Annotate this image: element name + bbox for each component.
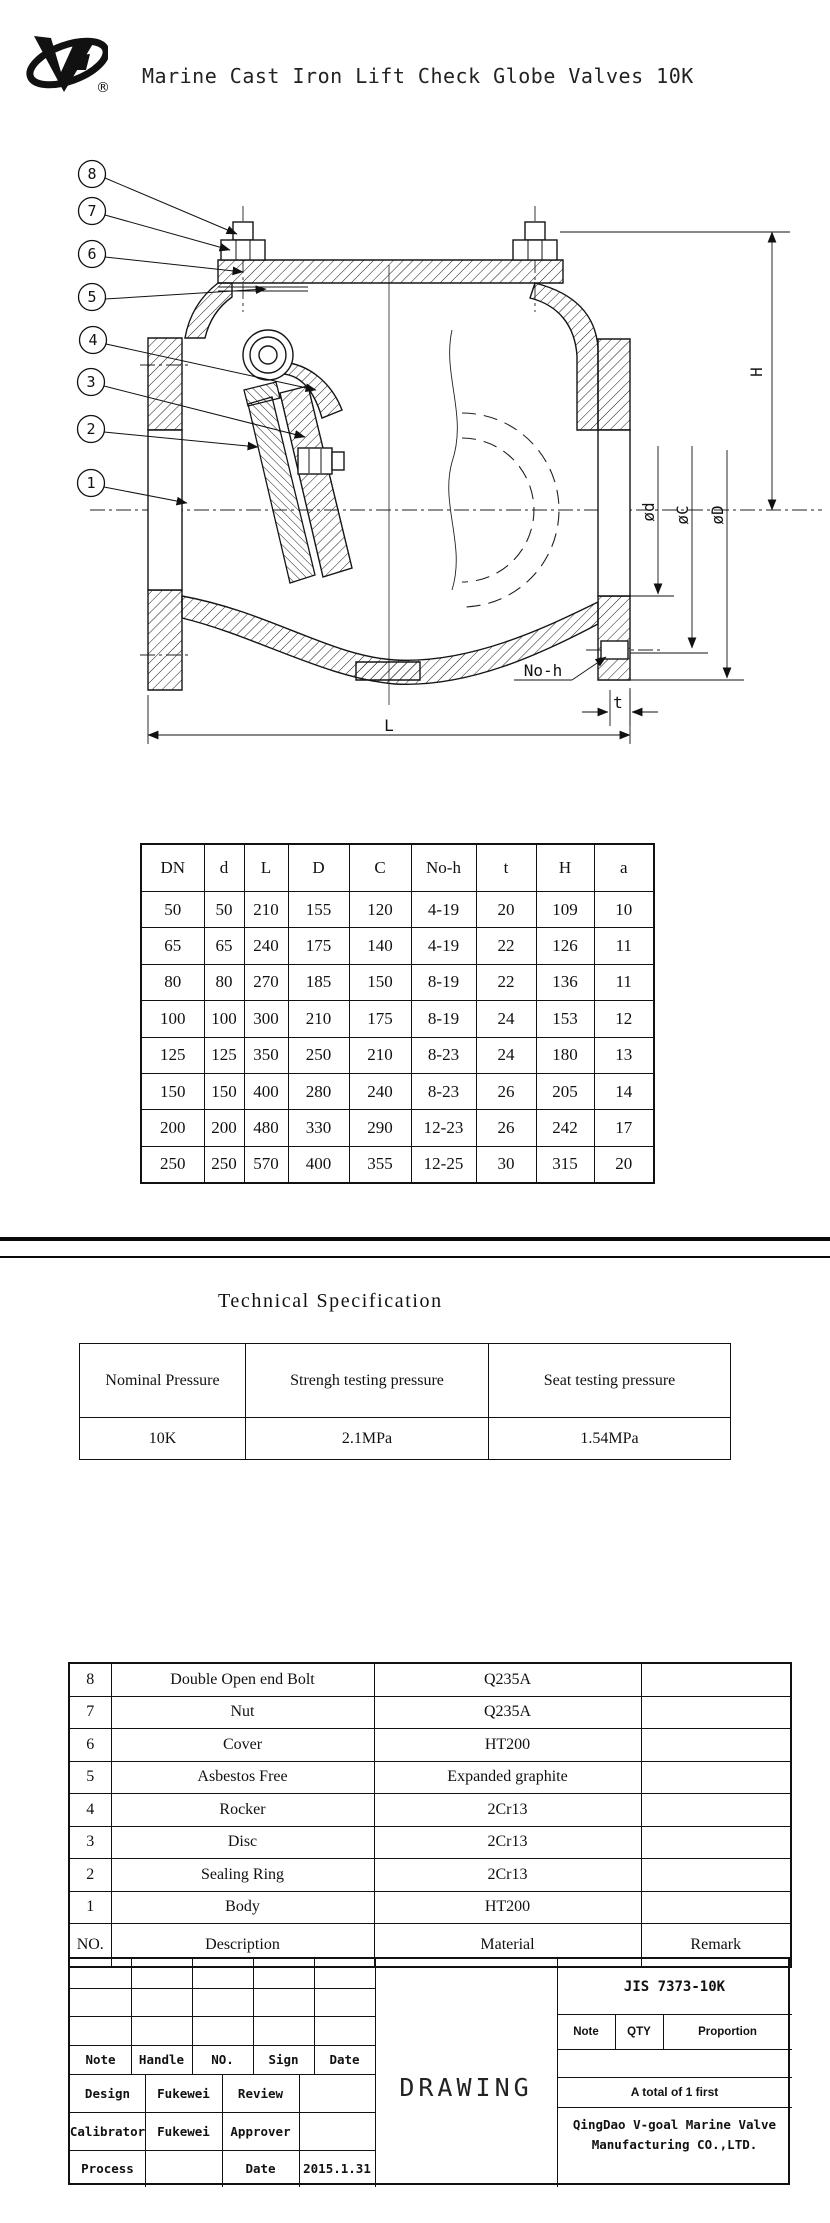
cell: 242 — [536, 1110, 594, 1146]
table-row: 6CoverHT200 — [69, 1729, 791, 1762]
stud-bolt-left — [233, 222, 253, 240]
cell: 2.1MPa — [246, 1418, 489, 1460]
parts-list-table: 8Double Open end BoltQ235A 7NutQ235A 6Co… — [68, 1662, 792, 1968]
cell: 11 — [594, 964, 654, 1000]
cell: 210 — [288, 1001, 349, 1037]
cell: 250 — [141, 1146, 204, 1183]
dim-label-d: ød — [639, 502, 658, 521]
approver-label: Approver — [222, 2112, 299, 2150]
part-remark — [641, 1794, 791, 1827]
cell: 210 — [349, 1037, 411, 1073]
rule — [70, 1988, 375, 1989]
cell: 30 — [476, 1146, 536, 1183]
dim-label-no-h: No-h — [524, 661, 563, 680]
table-row: 1251253502502108-232418013 — [141, 1037, 654, 1073]
part-remark — [641, 1859, 791, 1892]
dim-label-C: øC — [673, 505, 692, 524]
section-divider-thick — [0, 1237, 830, 1241]
cell: 350 — [244, 1037, 288, 1073]
cell: 175 — [288, 928, 349, 964]
cell: 150 — [349, 964, 411, 1000]
registered-trademark-icon: ® — [96, 80, 110, 96]
part-no: 1 — [69, 1891, 111, 1924]
inlet-flange-lower — [148, 590, 182, 690]
dimension-table: DN d L D C No-h t H a 50502101551204-192… — [140, 843, 655, 1184]
cell: 180 — [536, 1037, 594, 1073]
cell: 50 — [141, 892, 204, 928]
disc-nut — [298, 448, 332, 474]
table-row: 7NutQ235A — [69, 1696, 791, 1729]
process-label: Process — [70, 2150, 145, 2187]
col-header: DN — [141, 844, 204, 892]
part-no: 8 — [69, 1663, 111, 1696]
dim-label-H: H — [747, 367, 766, 377]
calibrator-label: Calibrator — [70, 2112, 145, 2150]
callout-number: 3 — [86, 373, 95, 391]
cell: 4-19 — [411, 928, 476, 964]
cell: 109 — [536, 892, 594, 928]
cell: 330 — [288, 1110, 349, 1146]
part-remark — [641, 1696, 791, 1729]
date-value: 2015.1.31 — [299, 2150, 375, 2187]
cell: 10K — [80, 1418, 246, 1460]
part-description: Asbestos Free — [111, 1761, 374, 1794]
cell: 100 — [141, 1001, 204, 1037]
grid-header-date: Date — [314, 2045, 375, 2074]
cell: 4-19 — [411, 892, 476, 928]
part-material: 2Cr13 — [374, 1826, 641, 1859]
drawing-label: DRAWING — [375, 2059, 557, 2115]
cell: 250 — [204, 1146, 244, 1183]
cell: 8-19 — [411, 964, 476, 1000]
col-header: t — [476, 844, 536, 892]
section-divider-thin — [0, 1256, 830, 1258]
part-material: Q235A — [374, 1696, 641, 1729]
cell: 65 — [141, 928, 204, 964]
cell: 20 — [476, 892, 536, 928]
standard-code: JIS 7373-10K — [557, 1959, 792, 2014]
cell: 12 — [594, 1001, 654, 1037]
cell: 240 — [349, 1073, 411, 1109]
col-header: d — [204, 844, 244, 892]
grid-header-note: Note — [70, 2045, 131, 2074]
table-row: 25025057040035512-253031520 — [141, 1146, 654, 1183]
col-header: Strengh testing pressure — [246, 1344, 489, 1418]
part-description: Double Open end Bolt — [111, 1663, 374, 1696]
cell: 155 — [288, 892, 349, 928]
col-header: L — [244, 844, 288, 892]
cell: 26 — [476, 1073, 536, 1109]
part-material: 2Cr13 — [374, 1794, 641, 1827]
cell: 1.54MPa — [489, 1418, 731, 1460]
nut-left — [221, 240, 265, 260]
cell: 50 — [204, 892, 244, 928]
cover-plate — [218, 260, 563, 283]
cell: 12-25 — [411, 1146, 476, 1183]
callout-number: 5 — [87, 288, 96, 306]
callout-number: 4 — [88, 331, 97, 349]
cell: 22 — [476, 964, 536, 1000]
cell: 65 — [204, 928, 244, 964]
cell: 175 — [349, 1001, 411, 1037]
dim-label-L: L — [384, 716, 394, 735]
callout-number: 7 — [87, 202, 96, 220]
cell: 205 — [536, 1073, 594, 1109]
datasheet-page: ® Marine Cast Iron Lift Check Globe Valv… — [0, 0, 830, 2223]
part-description: Rocker — [111, 1794, 374, 1827]
cell: 22 — [476, 928, 536, 964]
table-header-row: DN d L D C No-h t H a — [141, 844, 654, 892]
cell: 153 — [536, 1001, 594, 1037]
rule — [70, 2016, 375, 2017]
col-header: H — [536, 844, 594, 892]
outlet-flange-upper — [598, 339, 630, 430]
design-label: Design — [70, 2074, 145, 2112]
callout-number: 2 — [86, 420, 95, 438]
callout-number: 8 — [87, 165, 96, 183]
valve-section-drawing: H ød øC øD No-h t L — [0, 95, 830, 755]
part-no: 6 — [69, 1729, 111, 1762]
table-row: 3Disc2Cr13 — [69, 1826, 791, 1859]
part-description: Disc — [111, 1826, 374, 1859]
part-no: 2 — [69, 1859, 111, 1892]
cell: 150 — [141, 1073, 204, 1109]
part-material: HT200 — [374, 1729, 641, 1762]
cell: 400 — [244, 1073, 288, 1109]
part-description: Body — [111, 1891, 374, 1924]
cell: 125 — [141, 1037, 204, 1073]
cell: 140 — [349, 928, 411, 964]
cell: 8-23 — [411, 1037, 476, 1073]
process-value — [145, 2150, 222, 2187]
cell: 480 — [244, 1110, 288, 1146]
page-title: Marine Cast Iron Lift Check Globe Valves… — [142, 64, 694, 88]
cell: 300 — [244, 1001, 288, 1037]
company-name-line1: QingDao V-goal Marine Valve — [557, 2114, 792, 2134]
callout-bubbles: 8 7 6 5 4 3 2 1 — [78, 161, 107, 497]
cell: 136 — [536, 964, 594, 1000]
cell: 355 — [349, 1146, 411, 1183]
table-row: 4Rocker2Cr13 — [69, 1794, 791, 1827]
cell: 150 — [204, 1073, 244, 1109]
part-remark — [641, 1826, 791, 1859]
approver-value — [299, 2112, 375, 2150]
part-material: HT200 — [374, 1891, 641, 1924]
cell: 125 — [204, 1037, 244, 1073]
cell: 270 — [244, 964, 288, 1000]
grid-header-no: NO. — [192, 2045, 253, 2074]
inlet-flange-upper — [148, 338, 182, 430]
cell: 210 — [244, 892, 288, 928]
col-header: Nominal Pressure — [80, 1344, 246, 1418]
col-header: No-h — [411, 844, 476, 892]
table-row: 10K 2.1MPa 1.54MPa — [80, 1418, 731, 1460]
company-name-line2: Manufacturing CO.,LTD. — [557, 2134, 792, 2154]
spec-section-title: Technical Specification — [218, 1290, 443, 1313]
callout-number: 1 — [86, 474, 95, 492]
table-row: 5Asbestos FreeExpanded graphite — [69, 1761, 791, 1794]
dim-label-t: t — [613, 693, 623, 712]
table-row: 1501504002802408-232620514 — [141, 1073, 654, 1109]
stud-bolt-right — [525, 222, 545, 240]
cell: 280 — [288, 1073, 349, 1109]
part-description: Cover — [111, 1729, 374, 1762]
part-description: Sealing Ring — [111, 1859, 374, 1892]
cell: 10 — [594, 892, 654, 928]
dim-label-D: øD — [708, 505, 727, 524]
grid-header-handle: Handle — [131, 2045, 192, 2074]
cell: 13 — [594, 1037, 654, 1073]
cell: 100 — [204, 1001, 244, 1037]
total-note: A total of 1 first — [557, 2077, 792, 2107]
part-remark — [641, 1891, 791, 1924]
cell: 8-23 — [411, 1073, 476, 1109]
ratio-header-proportion: Proportion — [663, 2014, 792, 2049]
grid-header-sign: Sign — [253, 2045, 314, 2074]
nut-right — [513, 240, 557, 260]
cell: 12-23 — [411, 1110, 476, 1146]
table-row: 65652401751404-192212611 — [141, 928, 654, 964]
part-description: Nut — [111, 1696, 374, 1729]
col-header: a — [594, 844, 654, 892]
cell: 24 — [476, 1037, 536, 1073]
table-row: 80802701851508-192213611 — [141, 964, 654, 1000]
rule — [557, 2049, 792, 2050]
cell: 120 — [349, 892, 411, 928]
part-remark — [641, 1663, 791, 1696]
cell: 240 — [244, 928, 288, 964]
table-row: 1001003002101758-192415312 — [141, 1001, 654, 1037]
part-no: 4 — [69, 1794, 111, 1827]
part-remark — [641, 1761, 791, 1794]
col-header: D — [288, 844, 349, 892]
outlet-flange-lower — [598, 596, 630, 680]
part-no: 7 — [69, 1696, 111, 1729]
design-value: Fukewei — [145, 2074, 222, 2112]
cell: 24 — [476, 1001, 536, 1037]
cell: 126 — [536, 928, 594, 964]
cell: 14 — [594, 1073, 654, 1109]
table-row: 2Sealing Ring2Cr13 — [69, 1859, 791, 1892]
cell: 315 — [536, 1146, 594, 1183]
rule — [557, 2107, 792, 2108]
table-row: 20020048033029012-232624217 — [141, 1110, 654, 1146]
cell: 570 — [244, 1146, 288, 1183]
part-no: 5 — [69, 1761, 111, 1794]
part-material: 2Cr13 — [374, 1859, 641, 1892]
spec-table: Nominal Pressure Strengh testing pressur… — [79, 1343, 731, 1460]
part-no: 3 — [69, 1826, 111, 1859]
cell: 400 — [288, 1146, 349, 1183]
review-label: Review — [222, 2074, 299, 2112]
col-header: C — [349, 844, 411, 892]
cell: 17 — [594, 1110, 654, 1146]
table-row: 50502101551204-192010910 — [141, 892, 654, 928]
review-value — [299, 2074, 375, 2112]
cell: 20 — [594, 1146, 654, 1183]
date-label: Date — [222, 2150, 299, 2187]
part-material: Q235A — [374, 1663, 641, 1696]
title-block: Note Handle NO. Sign Date Design Fukewei… — [68, 1957, 790, 2185]
calibrator-value: Fukewei — [145, 2112, 222, 2150]
ratio-header-qty: QTY — [615, 2014, 663, 2049]
table-row: 8Double Open end BoltQ235A — [69, 1663, 791, 1696]
part-material: Expanded graphite — [374, 1761, 641, 1794]
cell: 80 — [204, 964, 244, 1000]
ratio-header-note: Note — [557, 2014, 615, 2049]
cell: 200 — [204, 1110, 244, 1146]
table-header-row: Nominal Pressure Strengh testing pressur… — [80, 1344, 731, 1418]
table-row: 1BodyHT200 — [69, 1891, 791, 1924]
cell: 8-19 — [411, 1001, 476, 1037]
cell: 290 — [349, 1110, 411, 1146]
cell: 26 — [476, 1110, 536, 1146]
flange-bolt-hole — [601, 641, 628, 659]
part-remark — [641, 1729, 791, 1762]
cell: 250 — [288, 1037, 349, 1073]
cell: 80 — [141, 964, 204, 1000]
cell: 11 — [594, 928, 654, 964]
col-header: Seat testing pressure — [489, 1344, 731, 1418]
cell: 200 — [141, 1110, 204, 1146]
cell: 185 — [288, 964, 349, 1000]
break-line — [449, 330, 458, 590]
callout-number: 6 — [87, 245, 96, 263]
